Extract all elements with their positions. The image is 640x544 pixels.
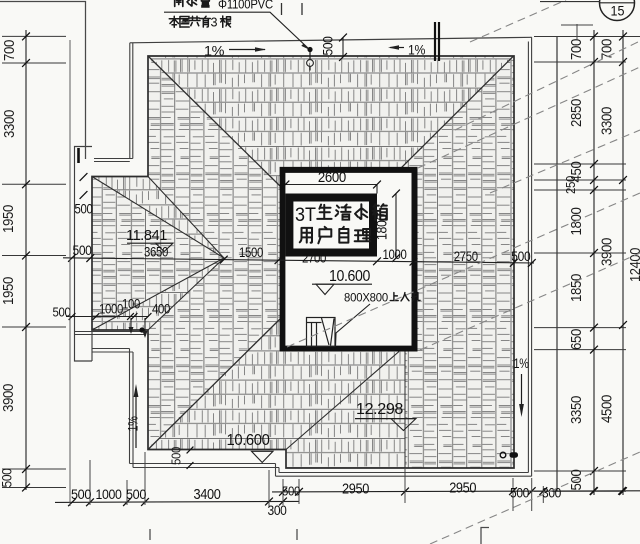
svg-text:1000: 1000 [99, 302, 123, 317]
svg-text:500: 500 [0, 469, 15, 488]
svg-text:2700: 2700 [302, 251, 326, 266]
svg-text:300: 300 [542, 486, 561, 501]
svg-text:500: 500 [169, 447, 184, 465]
svg-text:1000: 1000 [96, 486, 123, 502]
svg-text:300: 300 [268, 503, 287, 518]
svg-text:15: 15 [611, 4, 625, 19]
svg-text:500: 500 [53, 305, 71, 320]
svg-text:500: 500 [282, 483, 300, 498]
svg-text:1%: 1% [126, 416, 141, 431]
svg-text:250: 250 [563, 176, 578, 194]
svg-text:3900: 3900 [0, 384, 17, 412]
svg-text:700: 700 [568, 39, 585, 60]
svg-text:1%: 1% [514, 356, 529, 371]
svg-text:3650: 3650 [144, 245, 168, 260]
svg-text:12400: 12400 [627, 248, 640, 282]
svg-text:2950: 2950 [449, 481, 476, 497]
svg-text:1%: 1% [408, 42, 425, 58]
svg-text:3400: 3400 [194, 487, 221, 503]
svg-text:500: 500 [511, 249, 530, 264]
svg-text:500: 500 [71, 486, 92, 502]
svg-text:500: 500 [510, 486, 529, 501]
svg-text:4500: 4500 [599, 395, 616, 423]
svg-text:1800: 1800 [568, 207, 585, 235]
svg-text:2600: 2600 [318, 169, 346, 186]
svg-text:500: 500 [321, 37, 336, 56]
svg-text:1800: 1800 [375, 214, 391, 240]
svg-text:500: 500 [126, 486, 147, 502]
svg-text:1950: 1950 [0, 277, 17, 305]
svg-text:3350: 3350 [568, 396, 585, 424]
svg-text:2950: 2950 [342, 482, 369, 498]
svg-text:3T: 3T [295, 205, 316, 226]
svg-text:700: 700 [1, 40, 18, 61]
svg-text:1500: 1500 [239, 245, 263, 260]
svg-text:10.600: 10.600 [227, 432, 271, 449]
svg-text:2750: 2750 [454, 249, 478, 264]
svg-text:1000: 1000 [383, 247, 407, 262]
svg-text:Φ1100PVC: Φ1100PVC [218, 0, 273, 12]
svg-text:3300: 3300 [1, 110, 18, 138]
svg-text:400: 400 [152, 302, 170, 317]
svg-text:1950: 1950 [0, 205, 17, 233]
svg-text:1%: 1% [204, 43, 224, 59]
svg-text:800X800: 800X800 [344, 291, 388, 305]
svg-text:500: 500 [75, 202, 93, 217]
svg-text:12.298: 12.298 [356, 401, 403, 418]
svg-text:10.600: 10.600 [329, 268, 371, 285]
svg-text:3300: 3300 [599, 107, 616, 135]
svg-text:650: 650 [568, 329, 585, 350]
svg-text:500: 500 [73, 243, 92, 258]
svg-text:700: 700 [599, 39, 616, 60]
svg-text:3: 3 [211, 15, 218, 30]
svg-text:3900: 3900 [599, 238, 616, 266]
svg-text:1850: 1850 [568, 274, 585, 302]
svg-text:2850: 2850 [568, 99, 585, 127]
svg-text:11.841: 11.841 [126, 227, 167, 244]
svg-text:100: 100 [122, 297, 140, 312]
